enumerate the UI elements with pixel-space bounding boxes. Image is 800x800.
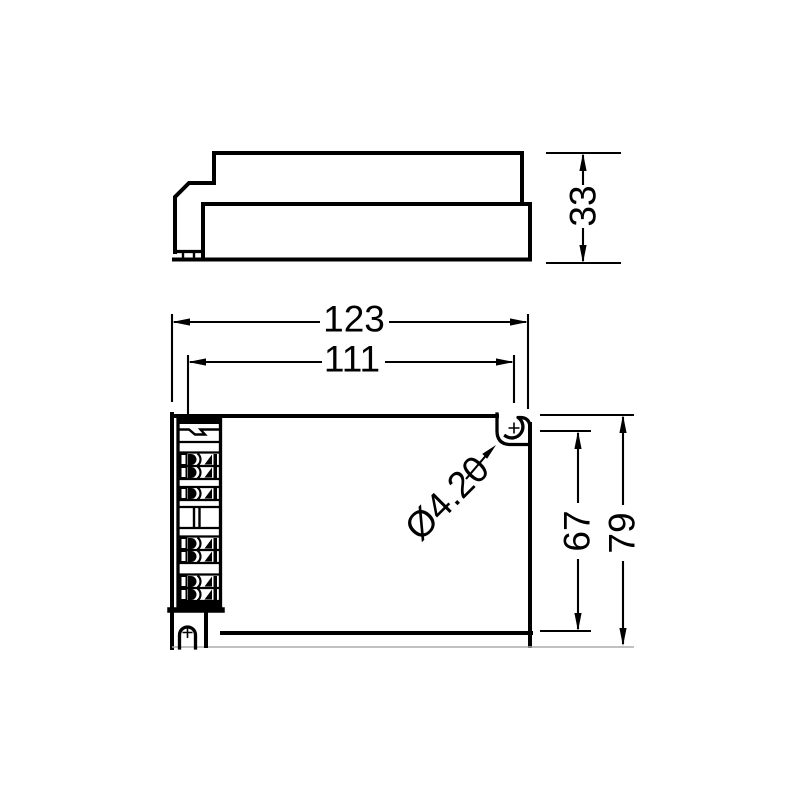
side-view (174, 153, 530, 260)
terminal-block (178, 419, 221, 608)
terminal-row (181, 576, 218, 588)
dim-67-label: 67 (557, 510, 598, 551)
dim-67-arrow-down (574, 613, 581, 631)
side-view-base-outline (203, 204, 530, 259)
terminal-row (181, 538, 218, 550)
dim-123-label: 123 (323, 299, 385, 340)
terminal-row (181, 467, 218, 479)
terminal-row (181, 551, 218, 563)
dim-67-arrow-up (574, 431, 581, 449)
slot-center-mark (509, 423, 520, 434)
terminal-row (181, 589, 218, 601)
mounting-slot-bottom-left (170, 610, 222, 648)
terminal-row (181, 454, 218, 466)
dimension-hole-diameter: Ø4.20 (397, 445, 497, 548)
dim-123-arrow-left (172, 318, 190, 325)
dim-111-label: 111 (324, 339, 380, 380)
dim-33-arrow-down (579, 245, 586, 263)
terminal-block-bottom-bar (179, 601, 221, 608)
dim-123-arrow-right (510, 318, 528, 325)
mounting-slot-top-right (497, 414, 530, 445)
dim-33-arrow-up (579, 153, 586, 171)
dimension-hole-spacing-height: 67 (540, 431, 598, 631)
terminal-block-center-posts (194, 507, 200, 528)
dim-33-label: 33 (563, 185, 604, 226)
terminal-row (181, 488, 218, 500)
dim-111-arrow-right (496, 358, 514, 365)
side-view-lid-top-right (214, 153, 522, 204)
dim-79-arrow-down (619, 628, 626, 646)
terminal-block-clip-notch (178, 430, 220, 435)
dimension-hole-spacing-width: 111 (188, 339, 514, 421)
dim-79-arrow-up (619, 415, 626, 433)
technical-drawing: 33 123 111 (0, 0, 800, 800)
technical-drawing-page: 33 123 111 (0, 0, 800, 800)
dim-111-arrow-left (188, 358, 206, 365)
dim-79-label: 79 (602, 512, 643, 553)
hole-diameter-label: Ø4.20 (397, 448, 497, 548)
terminal-block-top-bar (179, 419, 221, 424)
dimension-side-height: 33 (546, 153, 621, 263)
